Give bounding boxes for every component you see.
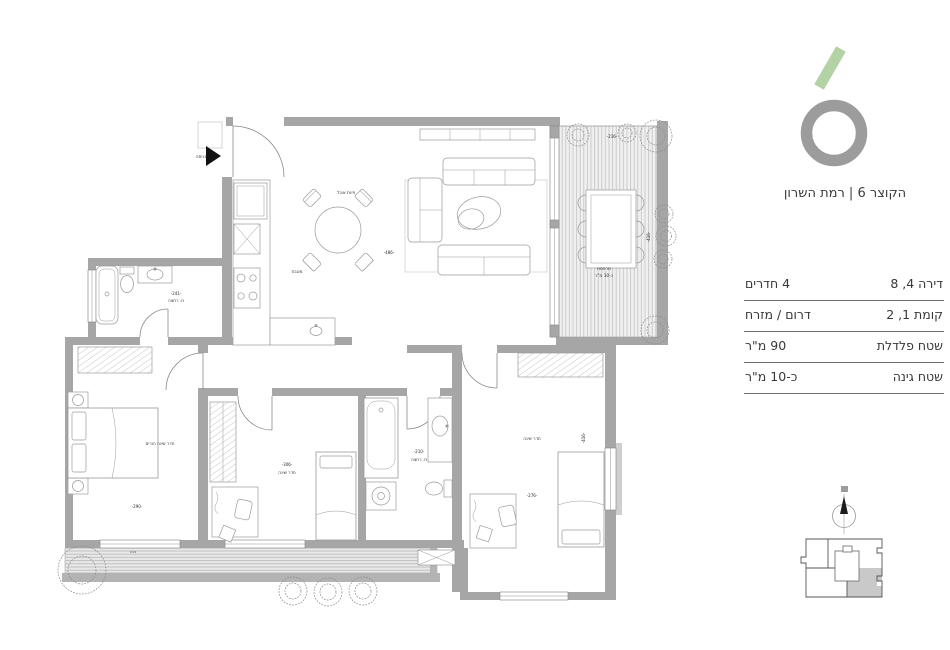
spec-row-apartment: דירה 4‏, 8 4 חדרים [744,270,944,301]
spec-value: 90 מ"ר [745,338,786,354]
label-bedroom-a-dim: -306- [282,462,293,467]
dining-table [302,188,373,271]
building-locator [801,539,882,597]
logo [807,49,862,161]
north-arrow [833,486,856,534]
label-master-dim: -290- [132,504,143,509]
label-bedroom-b-dim-v: -416- [581,432,586,443]
spec-row-garden: שטח גינה כ-10 מ"ר [744,363,944,394]
spec-label: דירה 4‏, 8 [890,276,943,292]
label-bedroom-b-name: חדר שינה [523,437,541,442]
master-bathroom [96,266,172,324]
bathroom [364,398,452,510]
label-bedroom-a-name: חדר שינה [278,471,296,476]
label-entrance: כניסה [196,155,207,160]
bedroom-b [470,353,604,548]
label-living-dim: -486- [384,250,395,255]
balcony-table [578,190,644,268]
label-master-name: חדר שינה הורים [145,442,174,447]
label-bedroom-b-dim: -276- [527,493,538,498]
label-balcony-dim-v: -416- [646,231,651,242]
label-bath-dim: -210- [414,449,425,454]
project-title: הקוצר 6 | רמת השרון [779,186,911,201]
spec-table: דירה 4‏, 8 4 חדרים קומת 1‏, 2 דרום / מזר… [744,270,944,394]
label-dining: פינת אוכל [337,191,356,196]
label-kitchen: מטבח [292,270,303,275]
label-master-bath-dim: -241- [171,291,182,296]
logo-accent-stroke [819,49,841,87]
spec-value: 4 חדרים [745,276,790,292]
spec-label: שטח גינה [893,369,943,385]
label-bath-name: ח. רחצה [411,458,427,463]
spec-row-area: שטח פלדלת 90 מ"ר [744,332,944,363]
spec-label: קומת 1‏, 2 [886,307,943,323]
ac-unit [418,550,455,565]
spec-row-floor: קומת 1‏, 2 דרום / מזרח [744,301,944,332]
label-master-bath-name: ח. רחצה [168,299,184,304]
floorplan-sheet: כניסה פינת אוכל מטבח -486- -216- מרפסת כ… [0,0,950,650]
logo-ring [807,106,862,161]
label-balcony-name: מרפסת [597,267,611,272]
label-garden: גינה [130,549,137,554]
entrance-arrow-icon [206,146,221,166]
label-balcony-area: כ-10 מ"ר [595,273,614,279]
master-bedroom [68,347,158,494]
spec-value: כ-10 מ"ר [745,369,797,385]
garden-strip [62,548,440,582]
spec-label: שטח פלדלת [877,338,943,354]
label-balcony-dim: -216- [607,134,618,139]
spec-value: דרום / מזרח [745,307,811,323]
living-room-furniture [405,129,547,275]
